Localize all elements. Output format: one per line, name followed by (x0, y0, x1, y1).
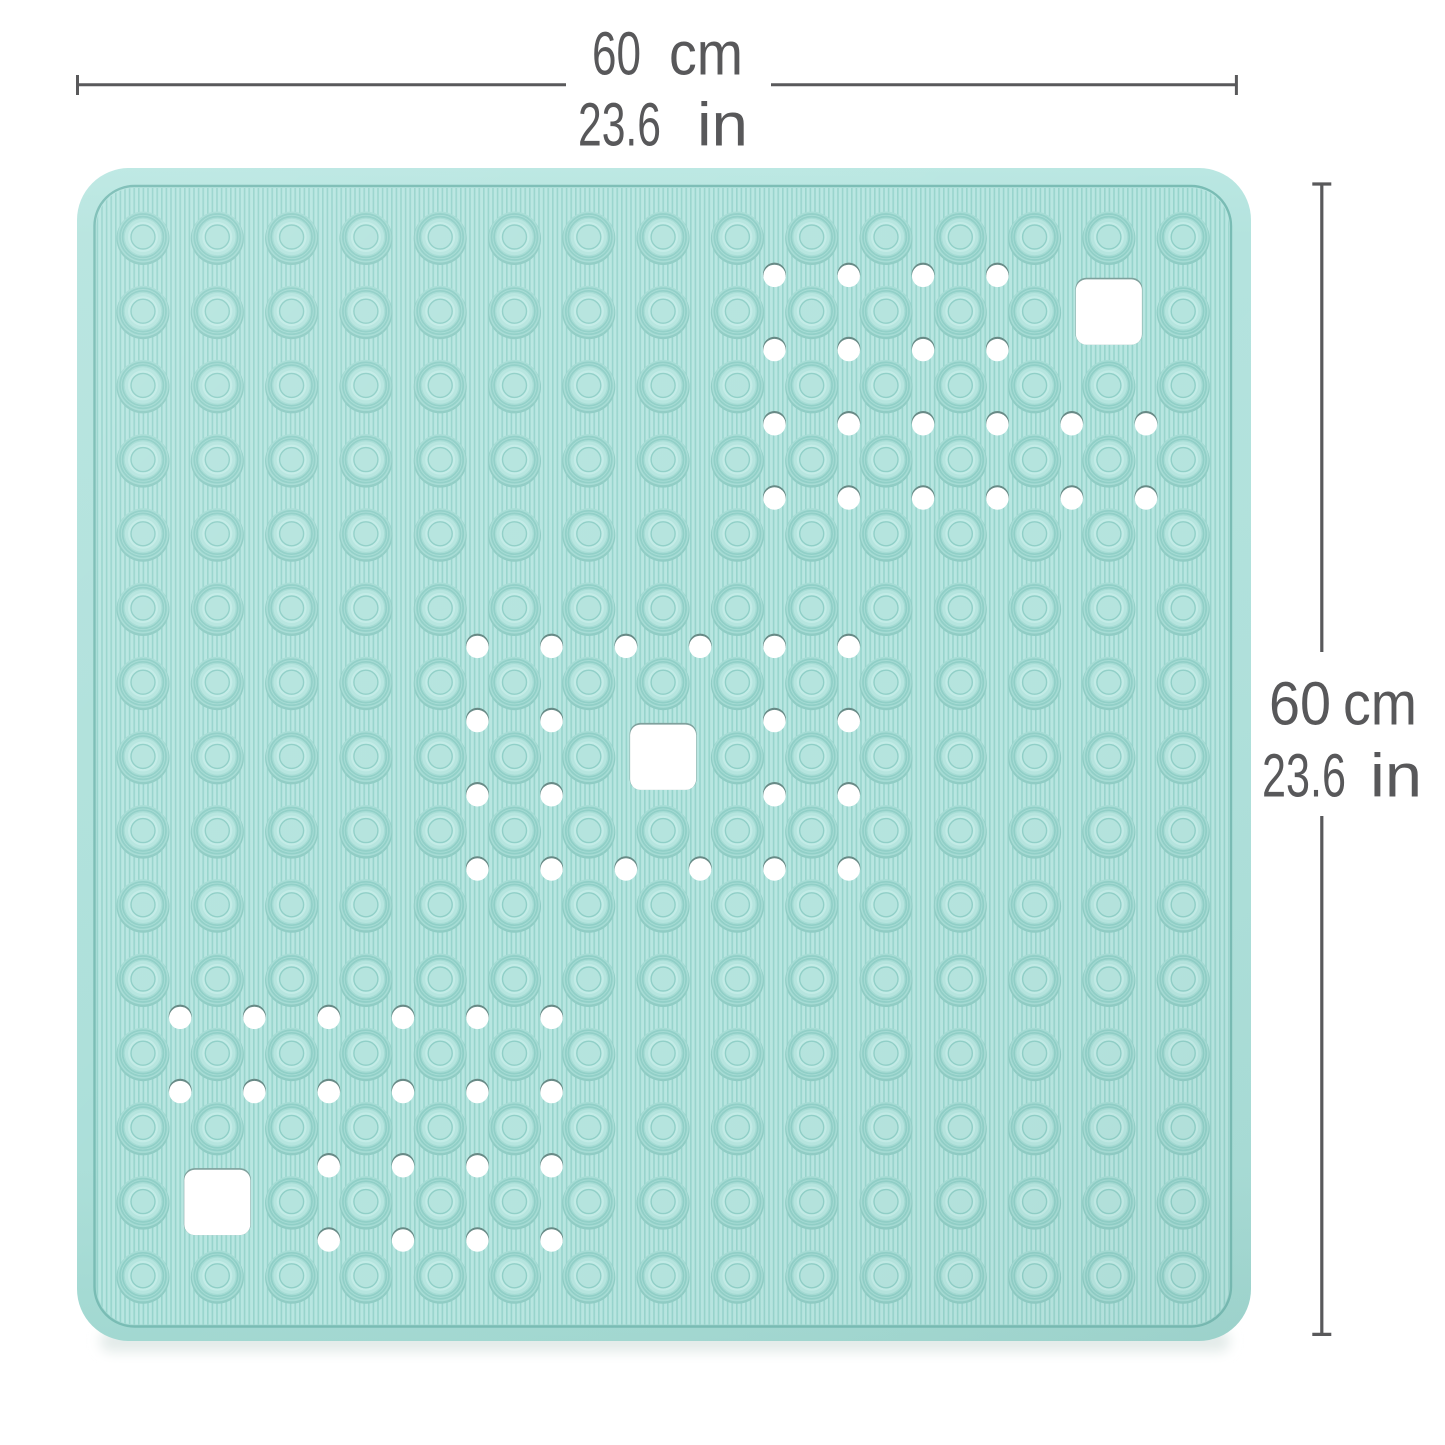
svg-text:cm: cm (669, 20, 743, 88)
svg-text:cm: cm (1343, 670, 1417, 738)
svg-text:in: in (697, 91, 748, 159)
svg-text:23.6: 23.6 (1262, 742, 1346, 810)
svg-text:23.6: 23.6 (578, 91, 661, 159)
svg-text:in: in (1370, 742, 1422, 810)
svg-text:60: 60 (1269, 670, 1331, 738)
svg-text:60: 60 (592, 20, 641, 88)
